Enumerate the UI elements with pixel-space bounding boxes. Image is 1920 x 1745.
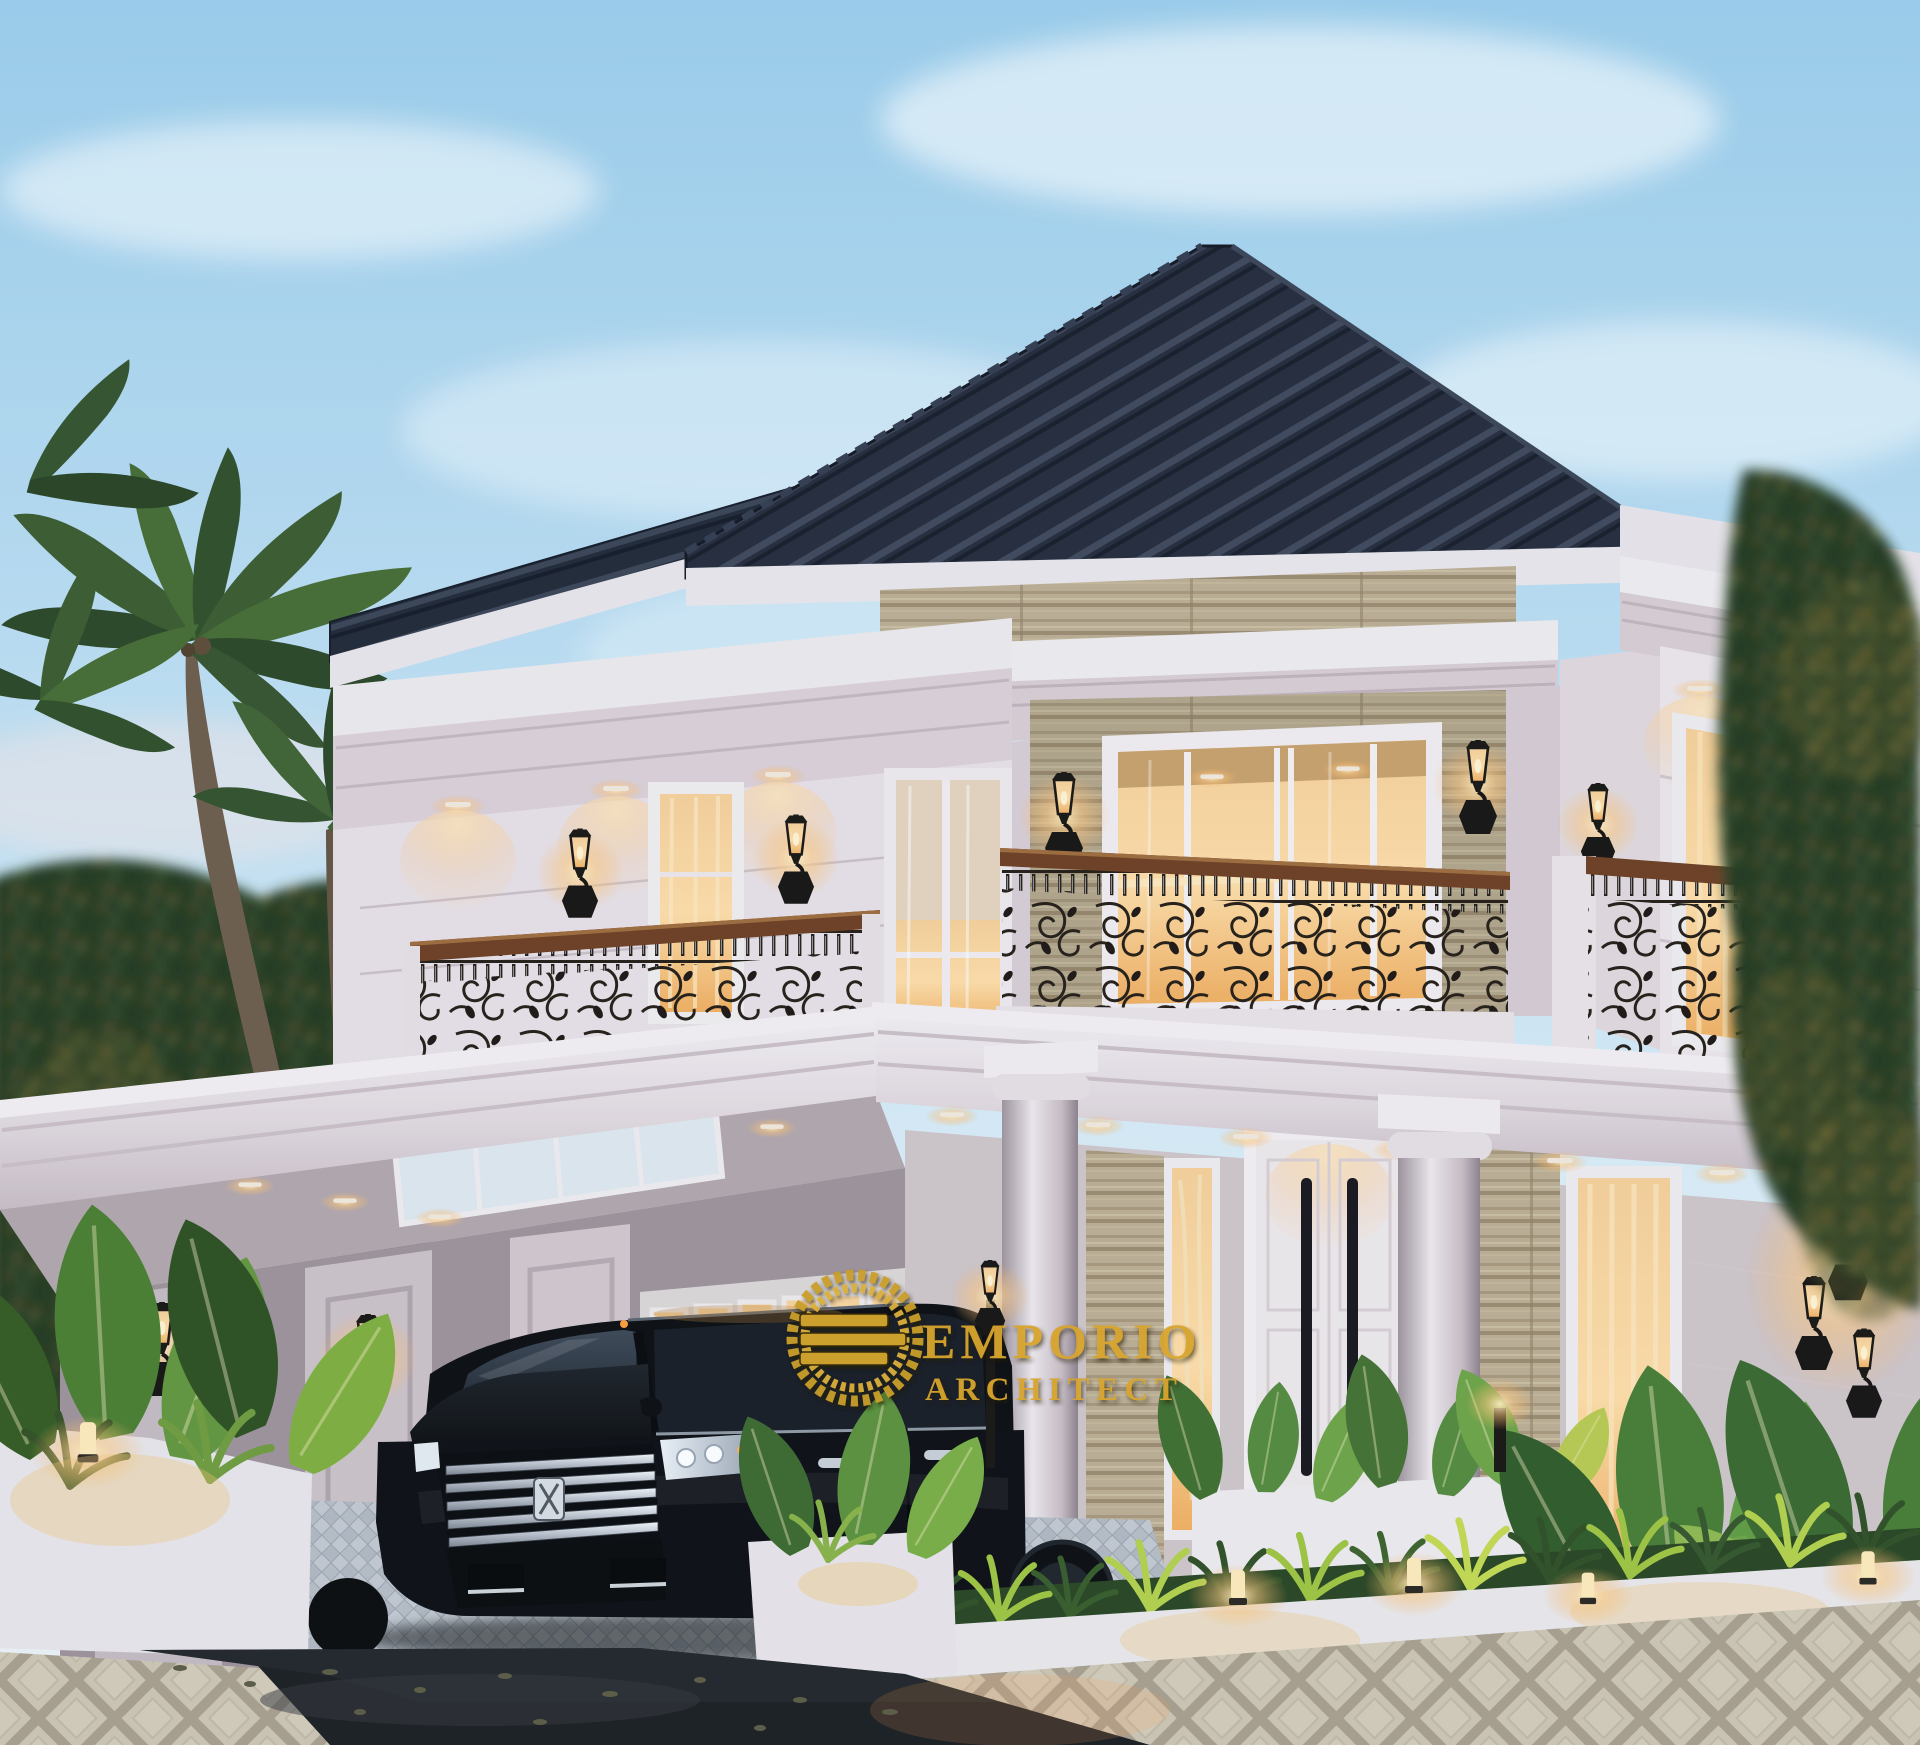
rendering-canvas: EMPORIO ARCHITECT (0, 0, 1920, 1745)
architectural-rendering: EMPORIO ARCHITECT (0, 0, 1920, 1745)
watermark-line1: EMPORIO (922, 1313, 1201, 1369)
color-grade-overlay (0, 0, 1920, 1745)
watermark-line2: ARCHITECT (925, 1372, 1183, 1408)
